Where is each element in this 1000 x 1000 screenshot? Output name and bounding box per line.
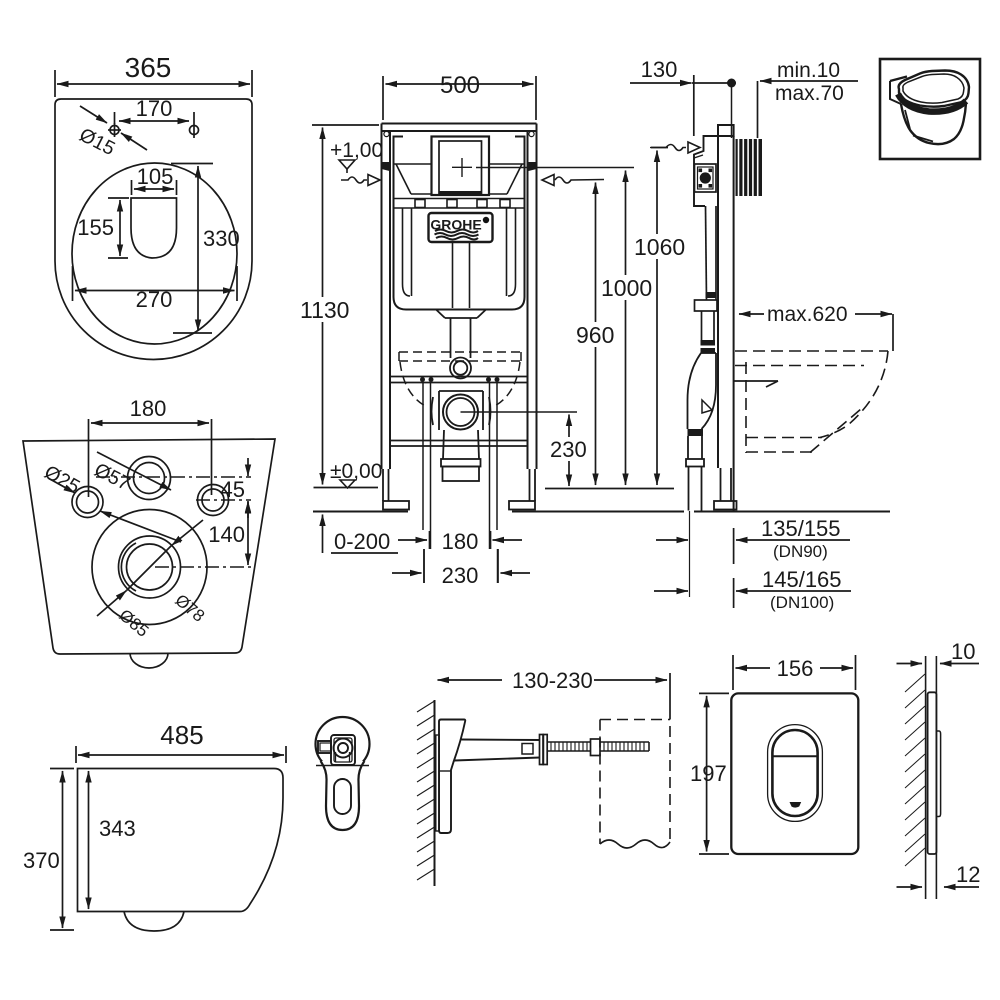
- svg-text:365: 365: [125, 52, 172, 83]
- svg-text:Ø78: Ø78: [171, 591, 208, 626]
- svg-text:270: 270: [136, 287, 173, 312]
- svg-text:230: 230: [442, 563, 479, 588]
- svg-text:(DN100): (DN100): [770, 593, 834, 612]
- svg-text:485: 485: [160, 720, 203, 750]
- svg-text:145/165: 145/165: [762, 567, 842, 592]
- svg-text:135/155: 135/155: [761, 516, 841, 541]
- svg-text:0-200: 0-200: [334, 529, 390, 554]
- svg-text:197: 197: [690, 761, 727, 786]
- svg-text:max.70: max.70: [775, 82, 844, 105]
- svg-text:min.10: min.10: [777, 59, 840, 82]
- svg-text:156: 156: [777, 656, 814, 681]
- svg-text:230: 230: [550, 437, 587, 462]
- svg-text:180: 180: [442, 529, 479, 554]
- svg-text:(DN90): (DN90): [773, 542, 828, 561]
- svg-text:140: 140: [208, 522, 245, 547]
- svg-text:+1,00: +1,00: [330, 139, 383, 162]
- svg-text:12: 12: [956, 862, 980, 887]
- svg-text:180: 180: [130, 396, 167, 421]
- svg-text:170: 170: [136, 96, 173, 121]
- svg-text:45: 45: [221, 477, 245, 502]
- svg-text:330: 330: [203, 226, 240, 251]
- svg-text:10: 10: [951, 639, 975, 664]
- svg-text:155: 155: [77, 215, 114, 240]
- svg-text:343: 343: [99, 816, 136, 841]
- svg-text:130: 130: [641, 57, 678, 82]
- svg-text:370: 370: [23, 848, 60, 873]
- svg-text:Ø85: Ø85: [115, 606, 152, 641]
- svg-text:1000: 1000: [601, 275, 652, 301]
- svg-text:500: 500: [440, 72, 480, 99]
- svg-text:1060: 1060: [634, 234, 685, 260]
- svg-text:960: 960: [576, 322, 614, 348]
- svg-text:130-230: 130-230: [512, 668, 593, 693]
- svg-text:1130: 1130: [300, 297, 349, 323]
- svg-text:105: 105: [137, 164, 174, 189]
- svg-text:max.620: max.620: [767, 303, 848, 326]
- svg-text:Ø25: Ø25: [41, 461, 84, 498]
